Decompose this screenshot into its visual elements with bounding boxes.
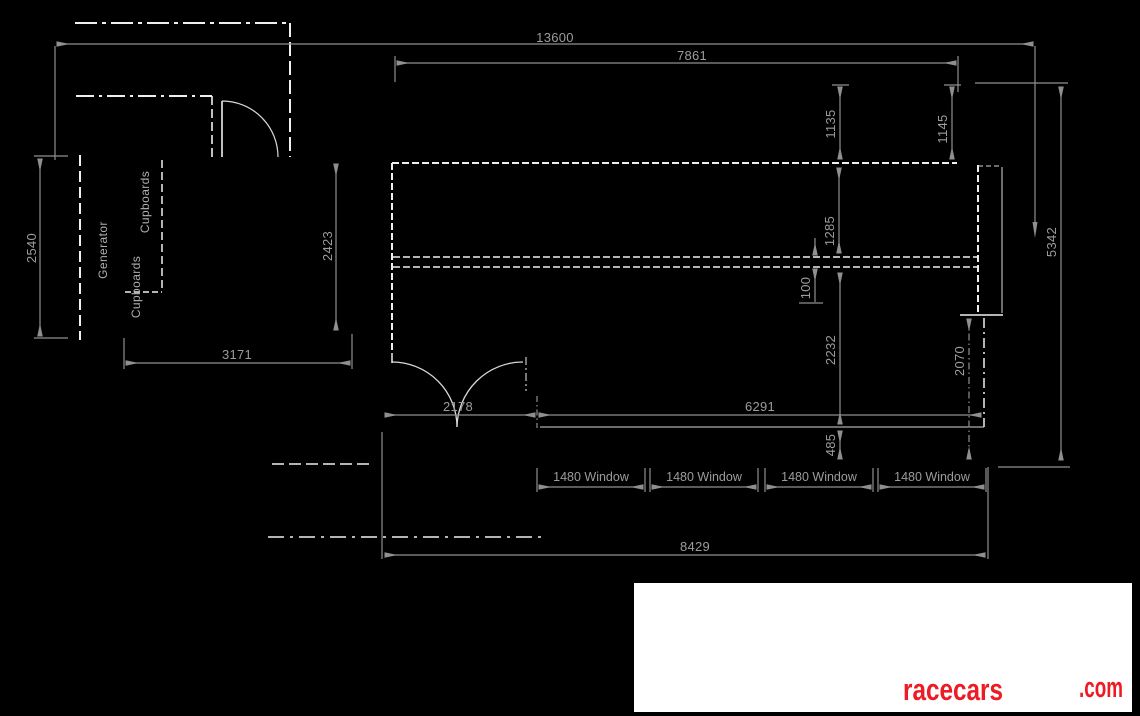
main-building-walls [268,163,1003,537]
dim-label-5342: 5342 [1044,227,1059,257]
window-dimensions: 1480 Window 1480 Window 1480 Window 1480… [537,468,986,492]
dimension-2423: 2423 [320,164,336,330]
dim-label-485: 485 [823,434,838,457]
dim-label-2540: 2540 [24,233,39,263]
dim-label-1285: 1285 [822,216,837,246]
dimension-1135: 1135 [823,85,849,159]
dimension-6291: 6291 [537,396,981,428]
logo-block: racecars .com [634,583,1132,712]
dimension-2540: 2540 [24,156,68,338]
dimension-7861: 7861 [395,48,958,92]
left-building-room-labels: Generator Cupboards Cupboards [96,171,152,318]
dim-label-7861: 7861 [677,48,707,63]
dimension-1285: 1285 [822,168,839,253]
door-swing-arc [222,101,278,157]
left-building-walls [75,23,290,340]
double-door-right-arc [457,362,523,427]
dimension-485: 485 [823,431,840,459]
dim-label-2423: 2423 [320,231,335,261]
dim-label-1145: 1145 [935,114,950,143]
window-label-1: 1480 Window [553,470,630,484]
logo-suffix-text: .com [1079,672,1123,704]
floor-plan-canvas: Generator Cupboards Cupboards 13600 7861 [0,0,1140,716]
dim-label-13600: 13600 [536,30,574,45]
dimension-8429: 8429 [382,432,988,559]
logo-brand-text: racecars [903,672,1003,707]
dimension-5342: 5342 [975,83,1070,467]
dim-label-3171: 3171 [222,347,252,362]
window-label-3: 1480 Window [781,470,858,484]
dim-label-2232: 2232 [823,335,838,365]
dim-label-1135: 1135 [823,109,838,138]
room-label-cupboards-upper: Cupboards [138,171,152,233]
dim-label-2070: 2070 [952,346,967,376]
dim-label-100: 100 [798,277,813,300]
dimension-13600: 13600 [55,30,1038,238]
window-label-4: 1480 Window [894,470,971,484]
floor-plan-drawing: Generator Cupboards Cupboards 13600 7861 [0,0,1140,716]
window-label-2: 1480 Window [666,470,743,484]
dim-label-2178: 2178 [443,399,473,414]
room-label-cupboards-lower: Cupboards [129,256,143,318]
dimension-1145: 1145 [935,85,961,159]
dimension-3171: 3171 [124,334,352,369]
dimension-2178: 2178 [385,399,535,415]
dim-label-6291: 6291 [745,399,775,414]
dim-label-8429: 8429 [680,539,710,554]
double-door-left-arc [392,362,457,427]
logo-background [634,583,1132,712]
dimension-100: 100 [798,238,823,303]
dimension-2232: 2232 [823,273,840,424]
dimension-2070: 2070 [952,319,969,459]
room-label-generator: Generator [96,221,110,279]
